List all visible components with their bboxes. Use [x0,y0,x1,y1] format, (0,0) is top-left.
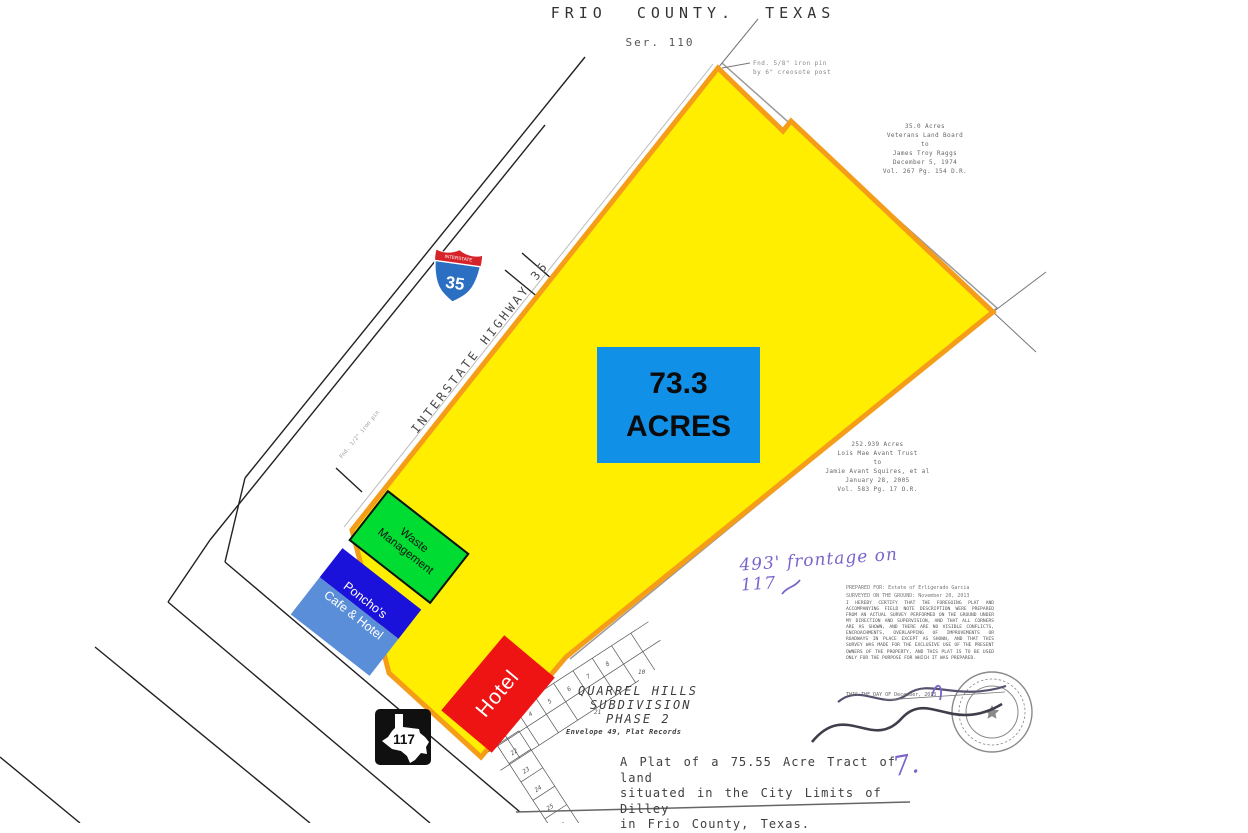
surveyor-seal-icon [952,672,1032,752]
acreage-unit: ACRES [626,405,731,449]
plat-map-page: { "header": { "title": "FRIO COUNTY. TEX… [0,0,1248,823]
prepared-for-block: PREPARED FOR: Estate of Erligerado Garci… [846,584,994,600]
subdivision-name-block: QUARREL HILLS SUBDIVISION PHASE 2 Envelo… [578,684,698,736]
map-title: FRIO COUNTY. TEXAS [548,4,838,22]
acreage-label-box: 73.3 ACRES [597,347,760,463]
subdivision-record: Envelope 49, Plat Records [566,728,698,736]
acreage-value: 73.3 [649,362,707,406]
deed-record-upper: 35.0 AcresVeterans Land Board toJames Tr… [855,122,995,176]
svg-text:10: 10 [638,669,646,676]
svg-text:24: 24 [533,784,543,794]
svg-text:6: 6 [566,685,573,693]
surveyor-certification: I HEREBY CERTIFY THAT THE FOREGOING PLAT… [846,601,994,662]
svg-text:ROAD: ROAD [386,754,404,760]
corner-pin-note: Fnd. 5/8" iron pin by 6" creosote post [753,59,831,77]
svg-text:23: 23 [521,766,531,776]
plat-statement: A Plat of a 75.55 Acre Tract of land sit… [620,755,930,833]
certification-date-line: THIS THE DAY OF December, 2013 [846,692,994,698]
svg-text:4: 4 [527,710,534,718]
survey-series-label: Ser. 110 [600,36,720,49]
deed-record-right: 252.939 AcresLois Mae Avant Trust toJami… [810,440,945,494]
svg-text:7: 7 [585,673,592,681]
handwritten-mark: 7. [891,748,922,783]
svg-text:35: 35 [444,273,465,294]
farm-road-117-sign-icon: FARM 117 ROAD [374,708,432,766]
interstate-35-shield-icon: INTERSTATE 35 [424,242,488,310]
svg-text:117: 117 [393,732,415,747]
svg-text:8: 8 [604,660,611,668]
svg-text:FARM: FARM [409,720,426,726]
svg-text:5: 5 [547,698,554,706]
